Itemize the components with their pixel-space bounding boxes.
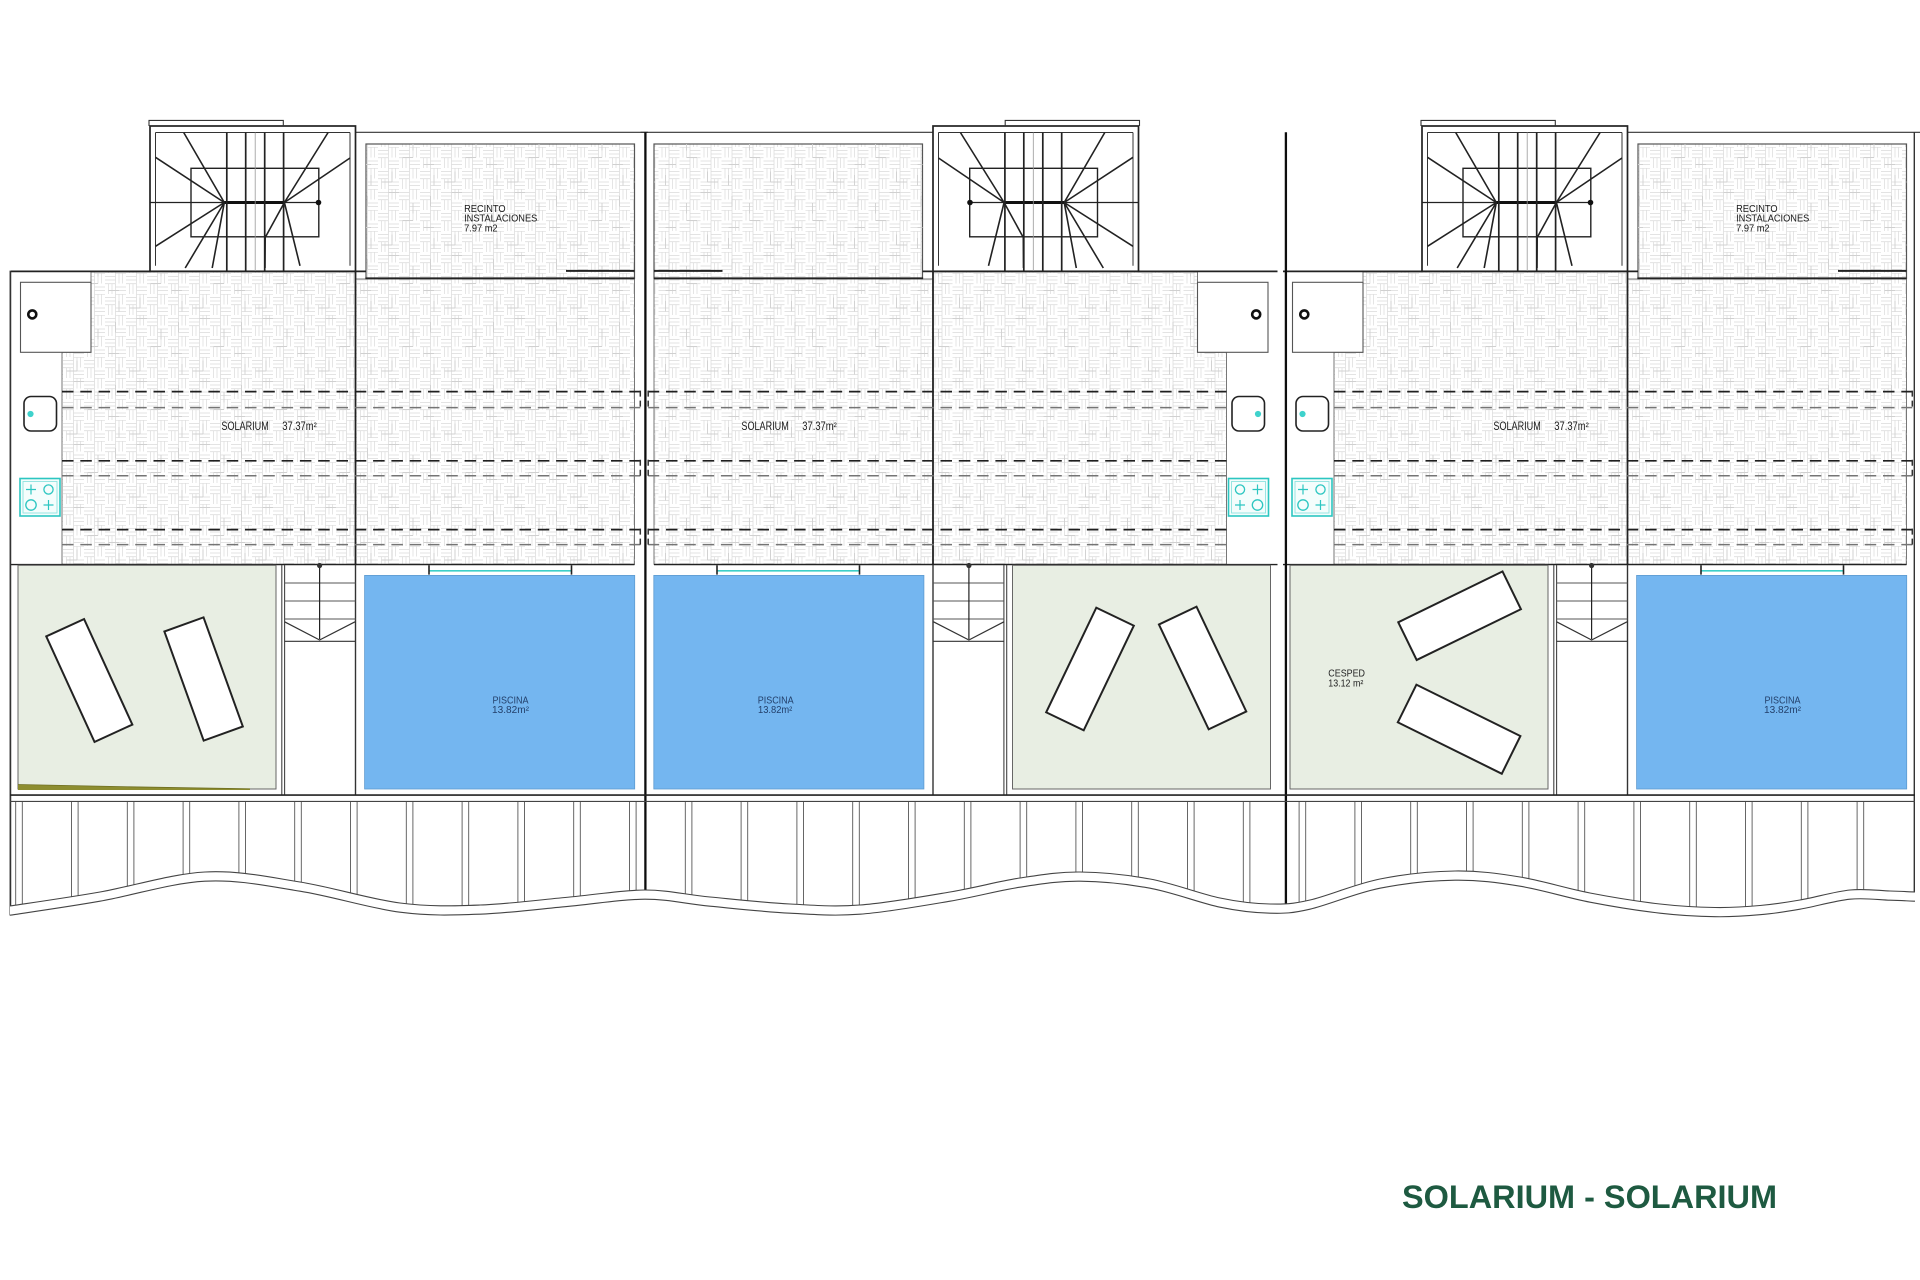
svg-text:7.97 m2: 7.97 m2: [464, 223, 498, 234]
svg-text:13.12 m²: 13.12 m²: [1328, 679, 1364, 690]
svg-text:37.37m²: 37.37m²: [1554, 420, 1589, 433]
svg-text:37.37m²: 37.37m²: [802, 420, 837, 433]
svg-text:37.37m²: 37.37m²: [282, 420, 317, 433]
svg-text:SOLARIUM: SOLARIUM: [1493, 420, 1540, 433]
svg-text:SOLARIUM - SOLARIUM: SOLARIUM - SOLARIUM: [1402, 1179, 1777, 1215]
svg-text:13.82m²: 13.82m²: [492, 705, 530, 716]
svg-text:13.82m²: 13.82m²: [758, 705, 793, 716]
svg-text:13.82m²: 13.82m²: [1764, 705, 1802, 716]
svg-text:7.97 m2: 7.97 m2: [1736, 223, 1770, 234]
svg-text:SOLARIUM: SOLARIUM: [741, 420, 788, 433]
svg-text:SOLARIUM: SOLARIUM: [221, 420, 268, 433]
